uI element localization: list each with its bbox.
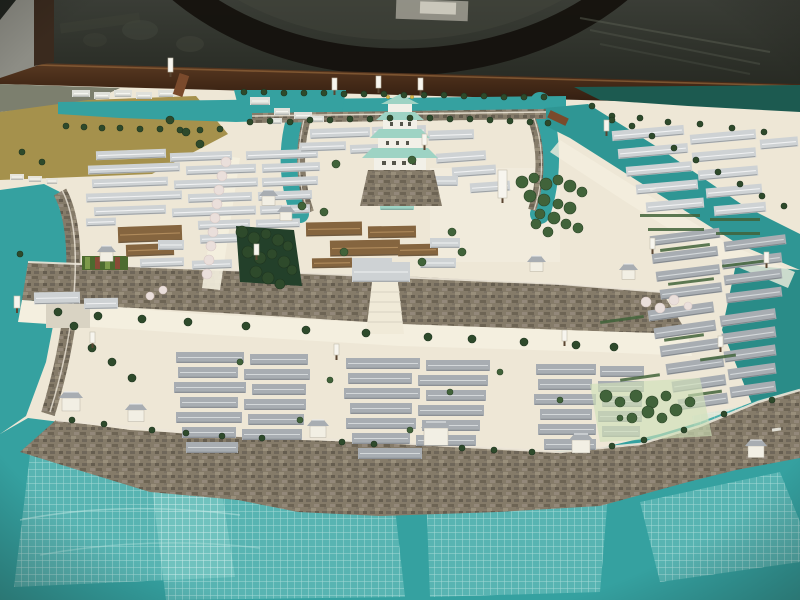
photo-vignette [0, 0, 800, 600]
castle-town-diorama-photo [0, 0, 800, 600]
scene-svg [0, 0, 800, 600]
